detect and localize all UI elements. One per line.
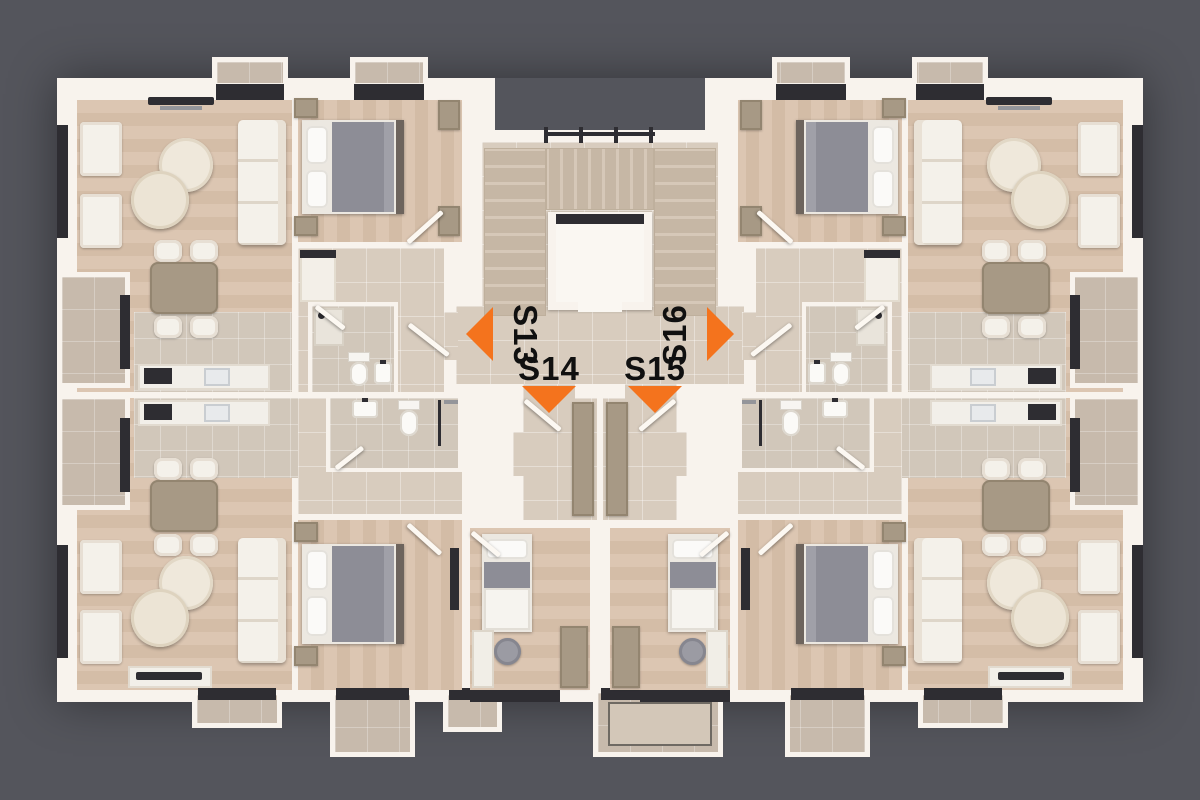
bottom-bay-balcony	[785, 690, 870, 757]
tv-screen	[986, 97, 1052, 105]
side-balcony	[1070, 394, 1143, 510]
left-wall-window	[1132, 545, 1143, 658]
dresser	[706, 630, 728, 688]
bed-pillow	[872, 596, 894, 636]
right-half	[0, 0, 1200, 800]
cooktop	[1028, 368, 1056, 384]
desk-stool	[679, 638, 706, 665]
armchair	[1078, 194, 1120, 248]
dining-chair	[1018, 240, 1046, 262]
bottom-bay-window	[791, 688, 864, 700]
bed-duvet	[806, 546, 868, 642]
sofa	[914, 538, 962, 663]
toilet-bowl	[782, 410, 800, 436]
dining-chair	[1018, 458, 1046, 480]
sink-tap	[832, 398, 838, 402]
sink-tap	[814, 360, 820, 364]
dining-chair	[982, 534, 1010, 556]
bed-pillow	[872, 170, 894, 208]
sofa	[914, 120, 962, 245]
top-bay-window	[916, 84, 984, 100]
hall-inner-opening	[675, 432, 687, 476]
bed-blanket	[670, 588, 716, 630]
arrow-left-icon	[466, 307, 493, 361]
wardrobe	[740, 100, 762, 130]
coffee-table	[1011, 171, 1069, 229]
nightstand	[882, 98, 906, 118]
dining-chair	[1018, 534, 1046, 556]
balcony-door-window	[1070, 295, 1080, 369]
armchair	[1078, 610, 1120, 664]
tv-screen	[998, 672, 1064, 680]
nightstand	[882, 522, 906, 542]
bed-footboard	[796, 544, 804, 644]
bedroom-tv-panel	[741, 548, 750, 610]
nightstand	[882, 646, 906, 666]
kitchen-sink	[970, 368, 996, 386]
dining-chair	[982, 240, 1010, 262]
bath-sink	[808, 362, 826, 384]
kids-room-window	[640, 690, 730, 702]
toilet	[830, 352, 852, 362]
coffee-table	[1011, 589, 1069, 647]
unit-label: S14	[514, 351, 584, 387]
top-bay-window	[776, 84, 846, 100]
floor-plan-scene: S13 S14 S15 S16	[0, 0, 1200, 800]
dining-chair	[982, 458, 1010, 480]
bed-footboard	[796, 120, 804, 214]
tv-shelf	[998, 106, 1040, 110]
bed-duvet	[670, 562, 716, 588]
dining-chair	[982, 316, 1010, 338]
unit-label: S16	[657, 300, 693, 370]
cooktop	[1028, 404, 1056, 420]
hall-wardrobe	[606, 402, 628, 516]
wardrobe	[612, 626, 640, 688]
toilet-bowl	[832, 362, 850, 386]
arrow-right-icon	[707, 307, 734, 361]
side-balcony	[1070, 272, 1143, 388]
bed-pillow	[872, 550, 894, 590]
shower-rail	[759, 400, 762, 446]
left-wall-window	[1132, 125, 1143, 238]
towel-bar	[742, 400, 756, 404]
bed-duvet	[806, 122, 868, 212]
bottom-bay-window	[924, 688, 1002, 700]
hall-closet-top	[864, 250, 900, 258]
dining-table	[982, 262, 1050, 314]
bed-pillow	[872, 126, 894, 164]
arrow-down-icon	[522, 386, 576, 413]
arrow-down-icon	[628, 386, 682, 413]
nightstand	[882, 216, 906, 236]
toilet	[780, 400, 802, 410]
kitchen-sink	[970, 404, 996, 422]
armchair	[1078, 540, 1120, 594]
dining-table	[982, 480, 1050, 532]
armchair	[1078, 122, 1120, 176]
balcony-door-window	[1070, 418, 1080, 492]
bath-sink	[822, 400, 848, 418]
dining-chair	[1018, 316, 1046, 338]
